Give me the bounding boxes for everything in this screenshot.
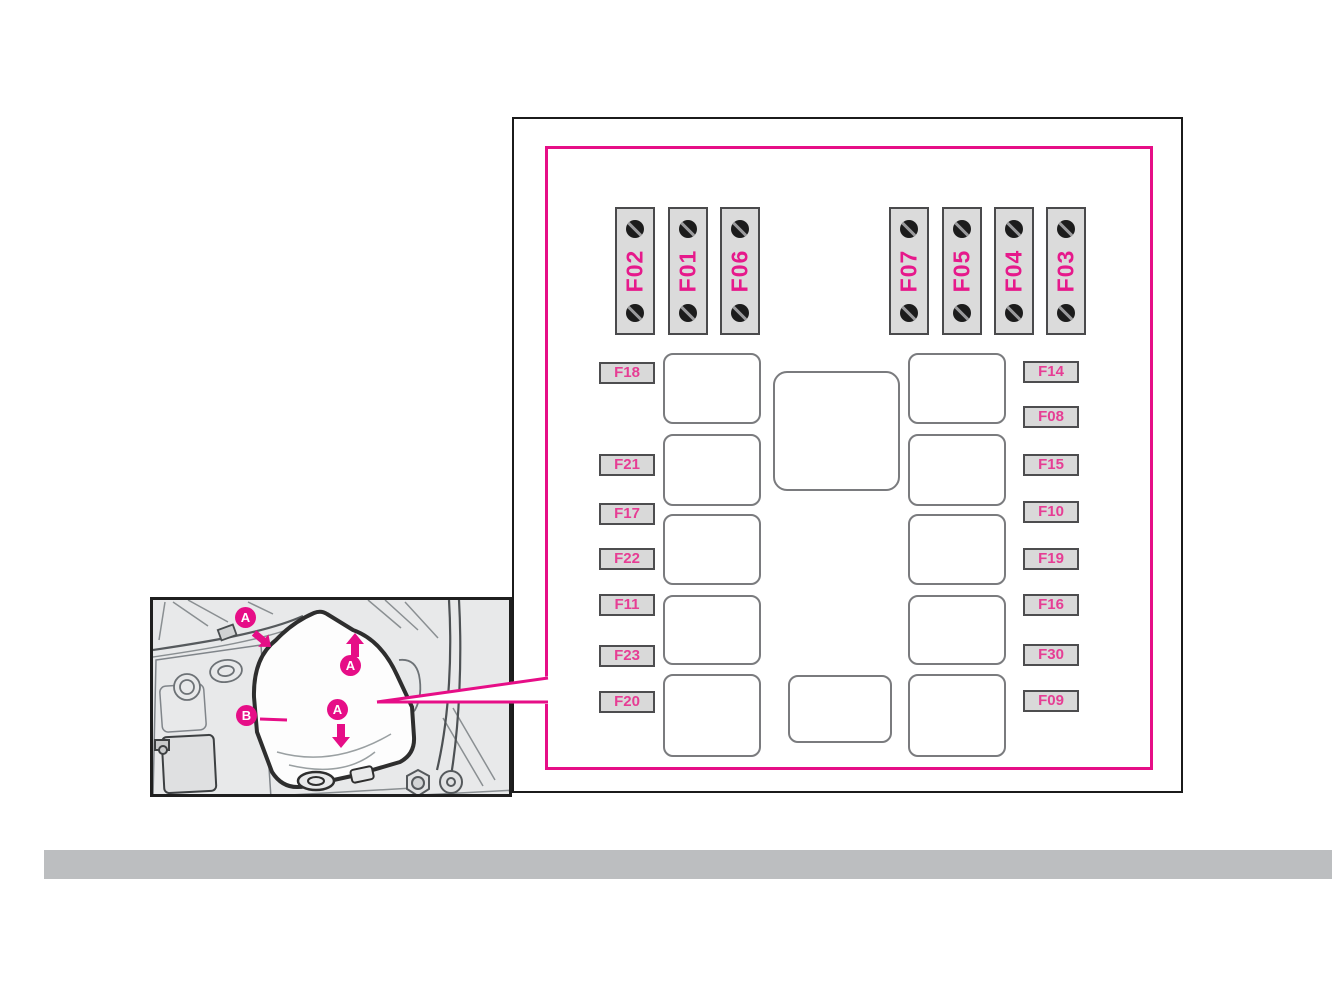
screw-icon <box>626 220 644 238</box>
screw-icon <box>900 220 918 238</box>
fuse-label-f20: F20 <box>599 691 655 713</box>
relay-slot <box>663 595 761 665</box>
screw-icon <box>1005 304 1023 322</box>
relay-slot <box>663 514 761 585</box>
marker-a-top-left: A <box>235 607 256 628</box>
fuse-label-f08: F08 <box>1023 406 1079 428</box>
washer-bolt <box>440 771 462 793</box>
fuse-label-f14: F14 <box>1023 361 1079 383</box>
footer-bar <box>44 850 1332 879</box>
marker-a-lift-up: A <box>340 655 361 676</box>
fuse-strip-label: F01 <box>675 250 702 293</box>
fuse-strip-label: F04 <box>1001 250 1028 293</box>
fuse-strip-f05: F05 <box>942 207 982 335</box>
handle-detail <box>209 658 244 684</box>
relay-slot <box>663 434 761 506</box>
relay-slot <box>908 674 1006 757</box>
relay-slot <box>663 353 761 424</box>
relay-slot <box>908 434 1006 506</box>
fuse-strip-f03: F03 <box>1046 207 1086 335</box>
relay-slot <box>663 674 761 757</box>
marker-b-leader-line <box>260 719 287 720</box>
screw-icon <box>679 304 697 322</box>
fuse-strip-f07: F07 <box>889 207 929 335</box>
fuse-strip-label: F02 <box>622 250 649 293</box>
fuse-label-f19: F19 <box>1023 548 1079 570</box>
relay-slot <box>908 514 1006 585</box>
screw-icon <box>626 304 644 322</box>
callout-wedge-icon <box>370 668 552 710</box>
fuse-strip-label: F07 <box>896 250 923 293</box>
fuse-strip-f01: F01 <box>668 207 708 335</box>
fuse-label-f16: F16 <box>1023 594 1079 616</box>
marker-b-cover: B <box>236 705 257 726</box>
fuse-label-f10: F10 <box>1023 501 1079 523</box>
fuse-strip-f02: F02 <box>615 207 655 335</box>
fuse-strip-label: F05 <box>949 250 976 293</box>
marker-a-press-down: A <box>327 699 348 720</box>
fuse-strip-f06: F06 <box>720 207 760 335</box>
relay-slot-large <box>773 371 900 491</box>
fuse-strip-label: F03 <box>1053 250 1080 293</box>
screw-icon <box>900 304 918 322</box>
screw-icon <box>731 220 749 238</box>
hex-bolt <box>407 770 429 796</box>
fuse-label-f18: F18 <box>599 362 655 384</box>
screw-icon <box>1057 304 1075 322</box>
fuse-label-f11: F11 <box>599 594 655 616</box>
relay-slot <box>908 595 1006 665</box>
screw-icon <box>1057 220 1075 238</box>
relay-slot <box>788 675 892 743</box>
screw-icon <box>953 304 971 322</box>
battery <box>155 735 216 794</box>
fuse-label-f09: F09 <box>1023 690 1079 712</box>
fuse-strip-f04: F04 <box>994 207 1034 335</box>
fuse-label-f22: F22 <box>599 548 655 570</box>
screw-icon <box>731 304 749 322</box>
hose-clamp <box>218 625 237 641</box>
fuse-label-f17: F17 <box>599 503 655 525</box>
fuse-label-f23: F23 <box>599 645 655 667</box>
screw-icon <box>953 220 971 238</box>
reservoir-cap <box>174 674 200 700</box>
fuse-label-f21: F21 <box>599 454 655 476</box>
screw-icon <box>1005 220 1023 238</box>
screw-icon <box>679 220 697 238</box>
fuse-label-f15: F15 <box>1023 454 1079 476</box>
fuse-label-f30: F30 <box>1023 644 1079 666</box>
fuse-strip-label: F06 <box>727 250 754 293</box>
relay-slot <box>908 353 1006 424</box>
